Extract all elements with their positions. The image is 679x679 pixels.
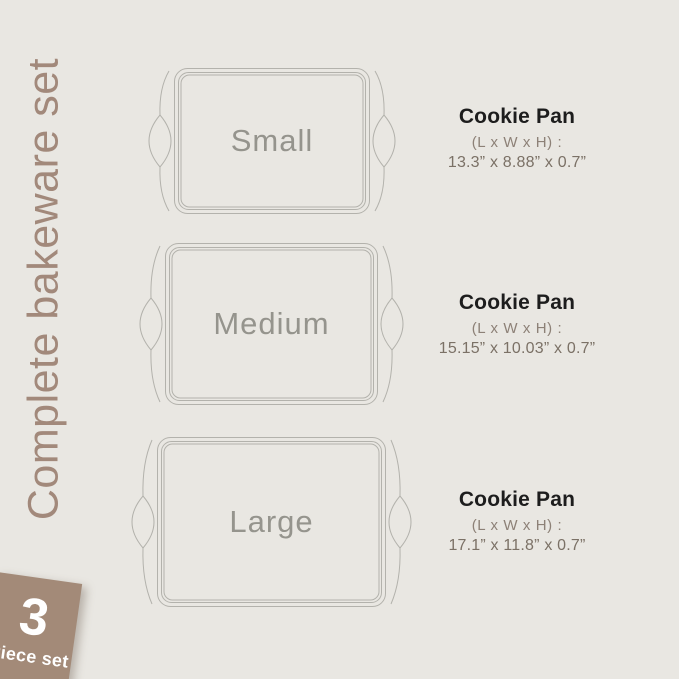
spec-block-small: Cookie Pan (L x W x H) : 13.3” x 8.88” x… (427, 104, 607, 173)
pan-illustration-medium: Medium (139, 243, 404, 405)
dimensions-small: 13.3” x 8.88” x 0.7” (427, 153, 607, 173)
spec-block-medium: Cookie Pan (L x W x H) : 15.15” x 10.03”… (427, 290, 607, 359)
side-banner-title: Complete bakeware set (20, 58, 69, 520)
product-name-large: Cookie Pan (427, 487, 607, 513)
bakeware-infographic: Complete bakeware set 3 Piece set Small (0, 0, 679, 679)
spec-block-large: Cookie Pan (L x W x H) : 17.1” x 11.8” x… (427, 487, 607, 556)
dims-heading-large: (L x W x H) : (427, 516, 607, 536)
pan-illustration-large: Large (131, 437, 412, 607)
dims-heading-medium: (L x W x H) : (427, 319, 607, 339)
badge-count: 3 (16, 589, 52, 646)
product-name-medium: Cookie Pan (427, 290, 607, 316)
piece-count-badge: 3 Piece set (0, 572, 82, 679)
pan-illustration-small: Small (148, 68, 396, 214)
pan-size-label-large: Large (131, 437, 412, 607)
dimensions-medium: 15.15” x 10.03” x 0.7” (427, 339, 607, 359)
dims-heading-small: (L x W x H) : (427, 133, 607, 153)
dimensions-large: 17.1” x 11.8” x 0.7” (427, 536, 607, 556)
product-name-small: Cookie Pan (427, 104, 607, 130)
pan-size-label-medium: Medium (139, 243, 404, 405)
pan-size-label-small: Small (148, 68, 396, 214)
